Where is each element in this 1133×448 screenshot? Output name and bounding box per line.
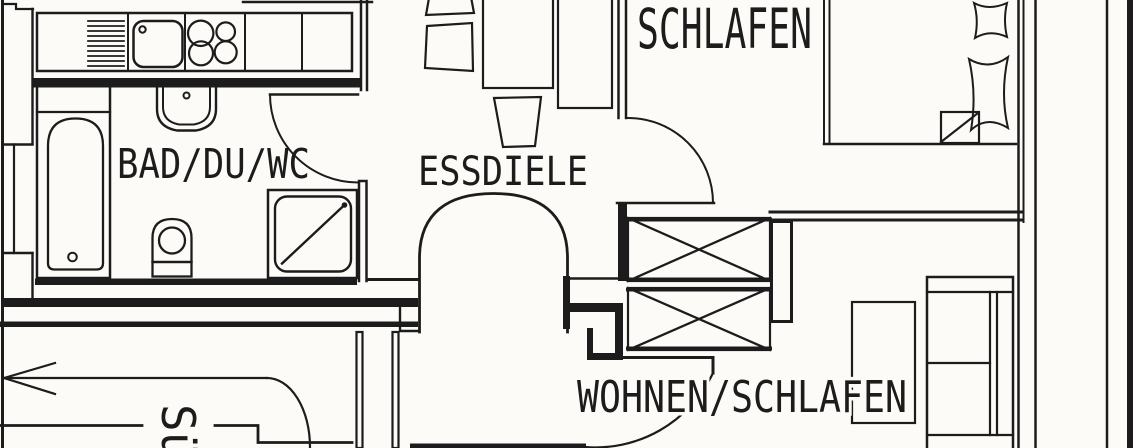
bedroom-living-wall <box>770 212 1023 322</box>
dining-furniture <box>425 0 612 147</box>
wall-column <box>618 204 627 281</box>
chair-icon <box>494 97 541 147</box>
toilet-icon <box>153 219 192 277</box>
kitchen-east-wall <box>361 0 367 90</box>
room-label-living-bedroom: WOHNEN/SCHLAFEN <box>577 372 907 423</box>
chair-icon <box>425 23 473 71</box>
bathroom-south-wall <box>35 279 357 286</box>
right-exterior-wall <box>1019 0 1133 448</box>
room-label-dining: ESSDIELE <box>418 149 588 195</box>
chair-icon <box>426 0 474 15</box>
bathroom-east-wall <box>359 181 367 281</box>
stove-burners-icon <box>188 21 237 66</box>
bedroom-west-wall <box>619 0 627 118</box>
room-label-bathroom: BAD/DU/WC <box>117 140 310 188</box>
drainer-hatch-icon <box>88 21 124 66</box>
room-label-bedroom: SCHLAFEN <box>637 0 812 61</box>
room-label-balcony: Sü <box>151 404 205 448</box>
arched-opening-icon <box>420 194 568 333</box>
shaft-wall <box>357 332 363 448</box>
wardrobe-1-icon <box>628 218 770 281</box>
bathtub-icon <box>37 83 110 278</box>
sofa-bed-icon <box>927 277 1013 448</box>
floor-plan-svg: BAD/DU/WC ESSDIELE SCHLAFEN WOHNEN/SCHLA… <box>0 0 1133 448</box>
shower-icon <box>268 190 357 278</box>
wardrobe-2-icon <box>628 288 770 350</box>
kitchen-counter <box>37 13 352 71</box>
double-bed-icon <box>824 0 1016 144</box>
south-wall <box>0 280 418 332</box>
shaft-wall <box>393 332 399 448</box>
sideboard-icon <box>558 0 612 108</box>
washbasin-icon <box>157 87 216 131</box>
living-door-frame <box>623 358 713 374</box>
kitchen-sink-icon <box>134 21 183 67</box>
dining-table-icon <box>483 0 553 88</box>
bedroom-door-swing-icon <box>617 118 714 203</box>
floor-plan: BAD/DU/WC ESSDIELE SCHLAFEN WOHNEN/SCHLA… <box>0 0 1133 448</box>
